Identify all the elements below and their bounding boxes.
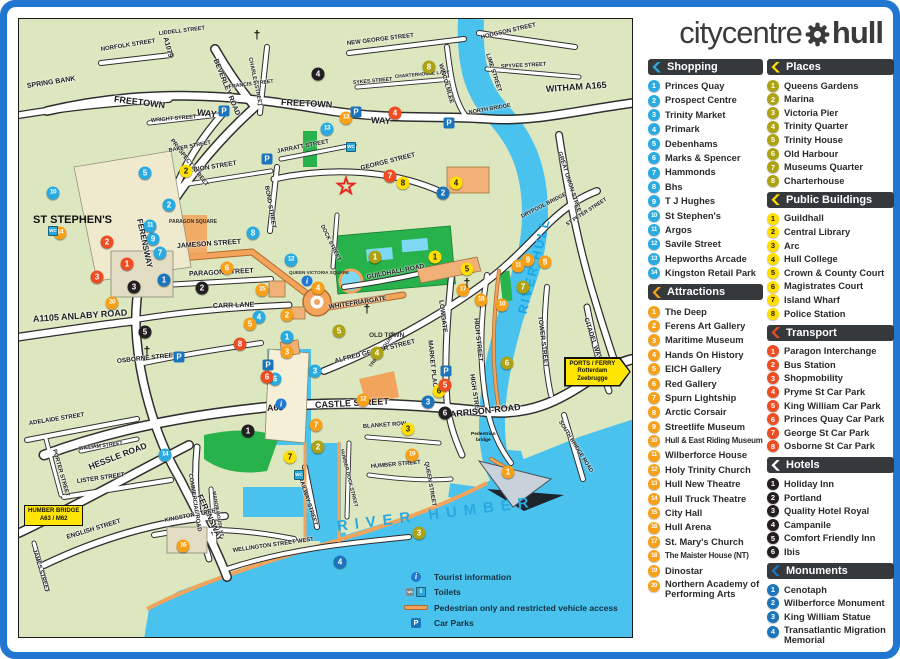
legend-item-label: Trinity Market (665, 110, 725, 120)
legend-column-right: Places1Queens Gardens2Marina3Victoria Pi… (767, 55, 894, 646)
sign-text: PORTS / FERRYRotterdamZeebrugge (566, 359, 630, 386)
legend-item-label: Queens Gardens (784, 81, 858, 91)
legend-item-number: 4 (648, 123, 660, 135)
marker-hotels-2: 2 (196, 282, 209, 295)
toilets-icon: WC (48, 226, 58, 236)
area-label-queen-victoria-square: QUEEN VICTORIA SQUARE (289, 271, 349, 276)
legend-item-shopping-1: 1Princes Quay (648, 79, 763, 93)
legend-item-label: Hull & East Riding Museum (665, 437, 763, 446)
car-park-icon: P (441, 366, 452, 377)
legend-item-number: 8 (648, 406, 660, 418)
legend-item-label: King William Statue (784, 612, 871, 622)
chevron-icon (771, 62, 780, 73)
sign-line: Zeebrugge (570, 376, 616, 384)
legend-header-label: Attractions (667, 286, 725, 298)
legend-header-label: Shopping (667, 61, 718, 73)
legend-item-number: 5 (767, 134, 779, 146)
chevron-icon (652, 287, 661, 298)
legend-item-number: 1 (767, 478, 779, 490)
legend-item-shopping-14: 14Kingston Retail Park (648, 266, 763, 280)
chevron-icon (771, 460, 780, 471)
legend-item-attractions-2: 2Ferens Art Gallery (648, 319, 763, 333)
marker-monuments-3: 3 (422, 396, 435, 409)
marker-hotels-6: 6 (439, 407, 452, 420)
brand-title-light: citycentre (679, 15, 802, 51)
toilets-icon: WC (346, 142, 356, 152)
legend-item-shopping-4: 4Primark (648, 122, 763, 136)
legend-item-attractions-13: 13Hull New Theatre (648, 477, 763, 491)
marker-places-6: 6 (501, 357, 514, 370)
page-card: FREETOWNWAYFREETOWNWAYWITHAM A165A1079BE… (7, 7, 893, 652)
legend-item-number: 13 (648, 253, 660, 265)
legend-item-label: King William Car Park (784, 401, 881, 411)
legend-item-number: 6 (767, 413, 779, 425)
legend-item-transport-8: 8Osborne St Car Park (767, 440, 894, 454)
tourist-information-icon: i (276, 399, 287, 410)
legend-item-number: 4 (767, 519, 779, 531)
legend-item-number: 7 (767, 294, 779, 306)
legend-header-label: Places (786, 61, 821, 73)
legend-item-places-5: 5Trinity House (767, 133, 894, 147)
legend-item-label: Dinostar (665, 566, 703, 576)
legend-item-shopping-11: 11Argos (648, 223, 763, 237)
legend-item-number: 6 (767, 281, 779, 293)
marker-attractions-19: 19 (406, 449, 419, 462)
legend-item-transport-1: 1Paragon Interchange (767, 345, 894, 359)
legend-item-number: 6 (648, 152, 660, 164)
legend-item-label: Osborne St Car Park (784, 441, 875, 451)
legend-item-number: 3 (767, 372, 779, 384)
legend-item-label: Hull Truck Theatre (665, 494, 746, 504)
marker-transport-8: 8 (234, 338, 247, 351)
legend-item-label: Police Station (784, 309, 845, 319)
church-icon: † (144, 345, 151, 357)
legend-item-number: 2 (767, 93, 779, 105)
legend-item-attractions-3: 3Maritime Museum (648, 333, 763, 347)
legend-item-shopping-2: 2Prospect Centre (648, 93, 763, 107)
legend-item-label: Charterhouse (784, 176, 844, 186)
sign-ports-ferry: PORTS / FERRYRotterdamZeebrugge (564, 357, 631, 387)
marker-attractions-16: 16 (177, 540, 190, 553)
legend-item-label: Princes Quay Car Park (784, 414, 884, 424)
legend-item-label: St Stephen's (665, 211, 721, 221)
legend-item-number: 12 (648, 238, 660, 250)
marker-monuments-1: 1 (158, 274, 171, 287)
legend-item-number: 8 (648, 181, 660, 193)
map-legend-label: Pedestrian only and restricted vehicle a… (434, 603, 618, 613)
marker-shopping-13: 13 (321, 123, 334, 136)
toilets-icon: WC (294, 470, 304, 480)
marker-transport-3: 3 (91, 271, 104, 284)
marker-shopping-2: 2 (163, 199, 176, 212)
legend-item-number: 1 (648, 80, 660, 92)
sign-humber-bridge: HUMBER BRIDGEA63 / M62 (24, 505, 83, 526)
legend-item-number: 6 (767, 546, 779, 558)
legend-item-label: Museums Quarter (784, 162, 863, 172)
church-icon: † (254, 29, 261, 41)
car-park-icon: P (174, 352, 185, 363)
legend-item-number: 16 (648, 522, 660, 534)
marker-shopping-7: 7 (154, 247, 167, 260)
legend-item-hotels-2: 2Portland (767, 491, 894, 505)
wc-glyph-small: wc (406, 588, 414, 596)
legend-item-label: Ibis (784, 547, 800, 557)
marker-shopping-12: 12 (285, 254, 298, 267)
gear-icon (804, 21, 831, 48)
legend-item-number: 1 (767, 213, 779, 225)
church-icon: † (364, 303, 371, 315)
legend-item-label: Argos (665, 225, 692, 235)
legend-item-label: Spurn Lightship (665, 393, 736, 403)
legend-item-number: 15 (648, 507, 660, 519)
chevron-icon (771, 327, 780, 338)
legend-item-label: Central Library (784, 227, 850, 237)
marker-shopping-1: 1 (281, 331, 294, 344)
chevron-icon (652, 62, 661, 73)
legend-item-label: T J Hughes (665, 196, 715, 206)
legend-item-number: 3 (767, 505, 779, 517)
legend-item-label: Victoria Pier (784, 108, 838, 118)
brand-title-bold: hull (832, 15, 883, 51)
legend-item-label: EICH Gallery (665, 364, 721, 374)
legend-item-number: 5 (648, 363, 660, 375)
legend-item-shopping-3: 3Trinity Market (648, 108, 763, 122)
marker-transport-4: 4 (389, 107, 402, 120)
legend-item-number: 4 (767, 253, 779, 265)
legend-item-number: 5 (767, 267, 779, 279)
legend-item-number: 1 (767, 80, 779, 92)
legend-item-number: 7 (767, 427, 779, 439)
marker-places-8: 8 (423, 61, 436, 74)
marker-attractions-8: 8 (539, 256, 552, 269)
legend-item-public-buildings-5: 5Crown & County Court (767, 266, 894, 280)
legend-item-places-3: 3Victoria Pier (767, 106, 894, 120)
legend-item-label: Debenhams (665, 139, 718, 149)
marker-places-5: 5 (333, 325, 346, 338)
sign-line: PORTS / FERRY (570, 361, 616, 369)
legend-item-hotels-4: 4Campanile (767, 518, 894, 532)
street-label-carr-lane: CARR LANE (213, 302, 254, 310)
marker-shopping-5: 5 (139, 167, 152, 180)
legend-item-attractions-4: 4Hands On History (648, 348, 763, 362)
legend-item-transport-7: 7George St Car Park (767, 426, 894, 440)
legend-item-label: The Deep (665, 307, 707, 317)
legend-item-attractions-16: 16Hull Arena (648, 520, 763, 534)
tourist-information-icon: i (302, 276, 313, 287)
legend-item-public-buildings-7: 7Island Wharf (767, 293, 894, 307)
legend-item-label: Campanile (784, 520, 831, 530)
legend-item-number: 10 (648, 435, 660, 447)
legend-item-number: 17 (648, 536, 660, 548)
marker-attractions-11: 11 (512, 260, 525, 273)
marker-monuments-4: 4 (334, 556, 347, 569)
legend-item-attractions-19: 19Dinostar (648, 564, 763, 578)
marker-public_buildings-5: 5 (461, 263, 474, 276)
marker-attractions-12: 12 (357, 394, 370, 407)
legend-item-public-buildings-6: 6Magistrates Court (767, 280, 894, 294)
citycentre-hull-map-page: FREETOWNWAYFREETOWNWAYWITHAM A165A1079BE… (0, 0, 900, 659)
legend-item-number: 7 (767, 161, 779, 173)
legend-item-number: 8 (767, 175, 779, 187)
legend-item-shopping-6: 6Marks & Spencer (648, 151, 763, 165)
city-centre-star-icon: ☆ (335, 175, 357, 199)
legend-item-number: 5 (767, 400, 779, 412)
marker-attractions-15: 15 (256, 284, 269, 297)
legend-item-number: 7 (648, 167, 660, 179)
legend-item-number: 9 (648, 195, 660, 207)
car-parks-icon: P (404, 618, 428, 628)
legend-item-number: 1 (648, 306, 660, 318)
legend-header-label: Monuments (786, 565, 848, 577)
legend-item-transport-3: 3Shopmobility (767, 372, 894, 386)
marker-public_buildings-7: 7 (284, 451, 297, 464)
church-icon: † (464, 277, 471, 289)
legend-item-attractions-9: 9Streetlife Museum (648, 420, 763, 434)
legend-item-attractions-8: 8Arctic Corsair (648, 405, 763, 419)
car-park-icon: P (351, 107, 362, 118)
marker-transport-7: 7 (384, 170, 397, 183)
legend-item-attractions-17: 17St. Mary's Church (648, 535, 763, 549)
legend-item-label: Streetlife Museum (665, 422, 745, 432)
marker-monuments-2: 2 (437, 187, 450, 200)
legend-item-shopping-12: 12Savile Street (648, 237, 763, 251)
tourist-information-icon: i (404, 572, 428, 582)
legend-item-label: Marina (784, 94, 814, 104)
marker-shopping-14: 14 (159, 449, 172, 462)
legend-item-public-buildings-2: 2Central Library (767, 225, 894, 239)
legend-item-label: Bhs (665, 182, 683, 192)
legend-item-number: 1 (767, 345, 779, 357)
legend-item-label: Trinity Quarter (784, 121, 848, 131)
legend-column-left: Shopping1Princes Quay2Prospect Centre3Tr… (648, 55, 763, 600)
legend-item-shopping-10: 10St Stephen's (648, 209, 763, 223)
legend-item-places-2: 2Marina (767, 93, 894, 107)
legend-item-number: 3 (767, 107, 779, 119)
legend-item-label: Bus Station (784, 360, 836, 370)
legend-item-label: Hull College (784, 254, 838, 264)
chevron-icon (771, 565, 780, 576)
legend-item-number: 5 (648, 138, 660, 150)
car-park-icon: P (263, 360, 274, 371)
chevron-icon (771, 194, 780, 205)
marker-public_buildings-4: 4 (450, 177, 463, 190)
info-glyph: i (411, 572, 421, 582)
legend-item-label: Island Wharf (784, 295, 840, 305)
legend-item-label: St. Mary's Church (665, 537, 744, 547)
sign-line: Rotterdam (570, 368, 616, 376)
legend-item-label: Holiday Inn (784, 479, 834, 489)
legend-item-number: 13 (648, 478, 660, 490)
legend-item-label: George St Car Park (784, 428, 869, 438)
legend-item-shopping-8: 8Bhs (648, 180, 763, 194)
legend-item-label: Hammonds (665, 167, 716, 177)
street-label-way: WAY (371, 116, 391, 126)
marker-attractions-7: 7 (310, 419, 323, 432)
legend-item-number: 3 (648, 109, 660, 121)
marker-attractions-4: 4 (312, 282, 325, 295)
legend-header-monuments: Monuments (767, 563, 894, 579)
legend-item-shopping-13: 13Hepworths Arcade (648, 252, 763, 266)
map-legend-item-tourist-information: iTourist information (404, 570, 618, 583)
car-park-icon: P (219, 106, 230, 117)
legend-item-attractions-7: 7Spurn Lightship (648, 391, 763, 405)
legend-item-number: 3 (767, 611, 779, 623)
legend-item-places-4: 4Trinity Quarter (767, 120, 894, 134)
legend-item-public-buildings-1: 1Guildhall (767, 212, 894, 226)
legend-header-places: Places (767, 59, 894, 75)
legend-item-label: Guildhall (784, 213, 824, 223)
legend-item-transport-2: 2Bus Station (767, 358, 894, 372)
legend-item-label: Maritime Museum (665, 335, 744, 345)
legend-item-label: Hull New Theatre (665, 479, 740, 489)
marker-places-2: 2 (312, 441, 325, 454)
legend-item-attractions-15: 15City Hall (648, 506, 763, 520)
legend-item-number: 4 (767, 386, 779, 398)
marker-hotels-1: 1 (242, 425, 255, 438)
legend-item-attractions-10: 10Hull & East Riding Museum (648, 434, 763, 448)
legend-item-label: Comfort Friendly Inn (784, 533, 875, 543)
legend-item-label: Kingston Retail Park (665, 268, 756, 278)
legend-item-public-buildings-4: 4Hull College (767, 253, 894, 267)
marker-attractions-6: 6 (221, 262, 234, 275)
legend-item-monuments-1: 1Cenotaph (767, 583, 894, 597)
legend-item-label: Primark (665, 124, 700, 134)
legend-item-attractions-5: 5EICH Gallery (648, 362, 763, 376)
map-legend-item-toilets: wc‖Toilets (404, 586, 618, 599)
legend-item-number: 4 (767, 121, 779, 133)
legend-item-transport-5: 5King William Car Park (767, 399, 894, 413)
legend-header-label: Public Buildings (786, 194, 872, 206)
legend-item-number: 2 (648, 95, 660, 107)
marker-places-7: 7 (517, 281, 530, 294)
legend-item-attractions-11: 11Wilberforce House (648, 448, 763, 462)
legend-item-hotels-5: 5Comfort Friendly Inn (767, 532, 894, 546)
legend-item-number: 14 (648, 267, 660, 279)
legend-item-label: Marks & Spencer (665, 153, 740, 163)
marker-places-4: 4 (371, 347, 384, 360)
legend-item-monuments-3: 3King William Statue (767, 610, 894, 624)
legend-item-label: Hepworths Arcade (665, 254, 747, 264)
legend-item-number: 14 (648, 493, 660, 505)
legend-item-label: Red Gallery (665, 379, 717, 389)
legend-header-attractions: Attractions (648, 284, 763, 300)
marker-public_buildings-3: 3 (402, 423, 415, 436)
legend-item-label: Ferens Art Gallery (665, 321, 745, 331)
marker-shopping-11: 11 (144, 220, 157, 233)
legend-item-label: Holy Trinity Church (665, 465, 751, 475)
legend-item-transport-6: 6Princes Quay Car Park (767, 412, 894, 426)
legend-item-number: 2 (767, 492, 779, 504)
legend-item-number: 11 (648, 224, 660, 236)
marker-hotels-3: 3 (128, 281, 141, 294)
legend-item-attractions-18: 18The Maister House (NT) (648, 549, 763, 563)
legend-item-label: Northern Academy of Performing Arts (665, 579, 763, 599)
marker-public_buildings-2: 2 (180, 165, 193, 178)
legend-item-label: Savile Street (665, 239, 721, 249)
legend-item-public-buildings-8: 8Police Station (767, 307, 894, 321)
legend-item-number: 2 (767, 597, 779, 609)
legend-item-attractions-14: 14Hull Truck Theatre (648, 492, 763, 506)
legend-item-label: Princes Quay (665, 81, 724, 91)
marker-public_buildings-1: 1 (429, 251, 442, 264)
legend-item-label: The Maister House (NT) (665, 552, 749, 561)
legend-item-places-6: 6Old Harbour (767, 147, 894, 161)
marker-transport-2: 2 (101, 236, 114, 249)
legend-item-number: 4 (767, 626, 779, 638)
legend-item-attractions-6: 6Red Gallery (648, 376, 763, 390)
legend-item-number: 10 (648, 210, 660, 222)
marker-attractions-2: 2 (281, 309, 294, 322)
legend-item-label: Trinity House (784, 135, 843, 145)
carpark-glyph: P (411, 618, 421, 628)
legend-item-number: 20 (648, 580, 660, 592)
marker-shopping-8: 8 (247, 227, 260, 240)
marker-hotels-4: 4 (312, 68, 325, 81)
legend-item-label: Wilberforce Monument (784, 598, 885, 608)
legend-item-places-1: 1Queens Gardens (767, 79, 894, 93)
legend-item-hotels-1: 1Holiday Inn (767, 477, 894, 491)
legend-item-number: 3 (767, 240, 779, 252)
legend-item-label: Arc (784, 241, 800, 251)
legend-header-public-buildings: Public Buildings (767, 192, 894, 208)
legend-header-label: Transport (786, 327, 837, 339)
legend-item-places-8: 8Charterhouse (767, 174, 894, 188)
legend-item-shopping-5: 5Debenhams (648, 137, 763, 151)
map-legend-item-pedestrian-only-and-restricted-vehicle-access: Pedestrian only and restricted vehicle a… (404, 601, 618, 614)
map-inner-legend: iTourist informationwc‖ToiletsPedestrian… (404, 570, 618, 630)
wc-glyph: ‖ (416, 587, 426, 597)
map-legend-label: Car Parks (434, 618, 474, 628)
pedestrian-access-icon (404, 605, 428, 610)
legend-header-transport: Transport (767, 325, 894, 341)
legend-item-number: 8 (767, 308, 779, 320)
marker-transport-1: 1 (121, 258, 134, 271)
marker-shopping-3: 3 (309, 365, 322, 378)
legend-item-label: Quality Hotel Royal (784, 506, 869, 516)
legend-item-shopping-7: 7Hammonds (648, 165, 763, 179)
map-legend-label: Tourist information (434, 572, 511, 582)
legend-item-label: Crown & County Court (784, 268, 884, 278)
legend-item-number: 3 (648, 334, 660, 346)
legend-item-label: Magistrates Court (784, 281, 863, 291)
legend-item-label: Transatlantic Migration Memorial (784, 625, 894, 645)
brand-logo: citycentre hull (679, 15, 883, 51)
marker-attractions-1: 1 (502, 466, 515, 479)
legend-item-hotels-6: 6Ibis (767, 545, 894, 559)
legend-item-label: Prospect Centre (665, 95, 737, 105)
marker-attractions-3: 3 (281, 346, 294, 359)
marker-attractions-18: 18 (475, 294, 488, 307)
legend-item-public-buildings-3: 3Arc (767, 239, 894, 253)
area-label-paragon-square: PARAGON SQUARE (169, 220, 217, 225)
legend-item-number: 9 (648, 421, 660, 433)
legend-item-label: Hands On History (665, 350, 744, 360)
legend-item-number: 8 (767, 440, 779, 452)
legend-header-label: Hotels (786, 459, 820, 471)
legend-item-monuments-2: 2Wilberforce Monument (767, 596, 894, 610)
legend-item-number: 2 (767, 226, 779, 238)
city-map: FREETOWNWAYFREETOWNWAYWITHAM A165A1079BE… (18, 18, 633, 638)
legend-item-number: 2 (767, 359, 779, 371)
car-park-icon: P (444, 118, 455, 129)
legend-item-number: 1 (767, 584, 779, 596)
legend-item-places-7: 7Museums Quarter (767, 161, 894, 175)
legend-item-number: 5 (767, 532, 779, 544)
toilets-icon: wc‖ (404, 587, 428, 597)
marker-public_buildings-8: 8 (397, 177, 410, 190)
legend-item-label: City Hall (665, 508, 702, 518)
marker-hotels-5: 5 (139, 326, 152, 339)
